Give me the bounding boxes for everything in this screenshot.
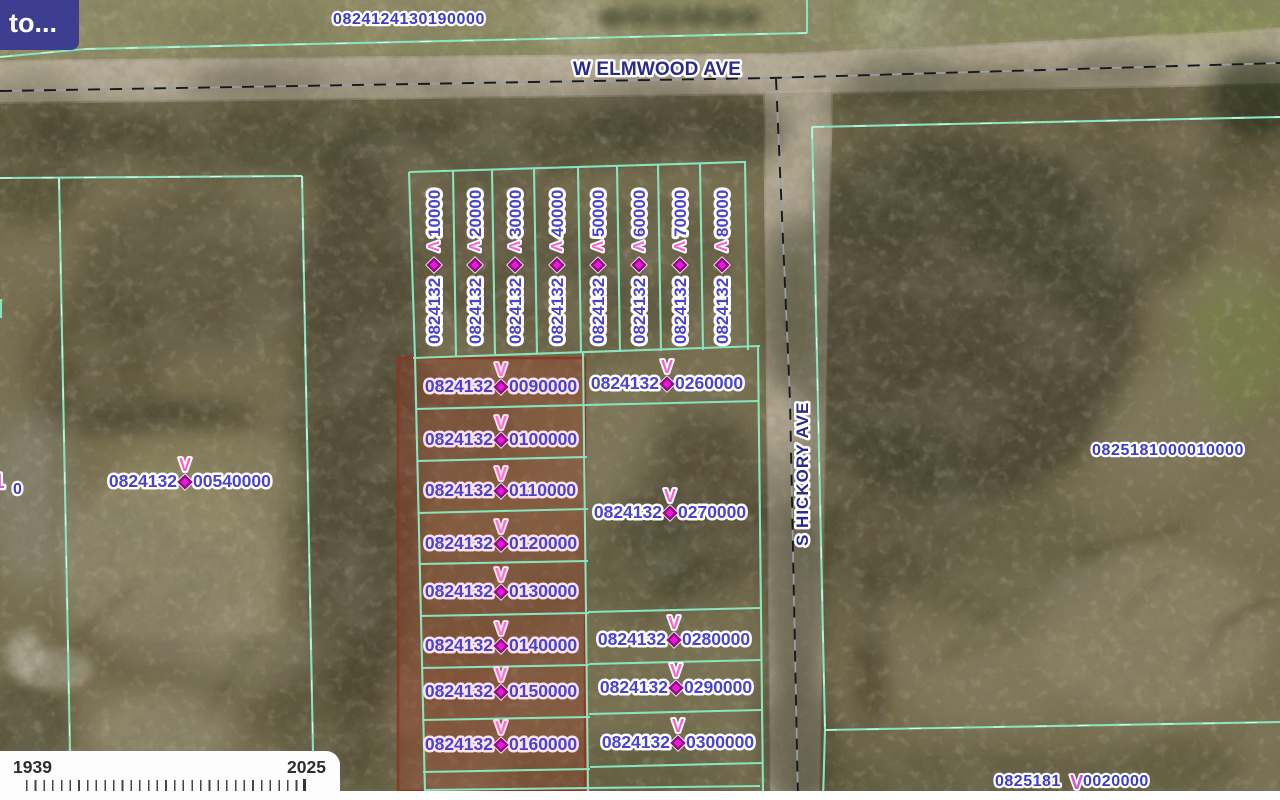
svg-text:0: 0 [13,481,22,498]
svg-text:0130000: 0130000 [509,581,577,601]
svg-text:0824132: 0824132 [425,429,493,449]
svg-text:V: V [588,241,605,252]
svg-text:0824132: 0824132 [671,278,690,344]
svg-text:0824132: 0824132 [425,581,493,601]
svg-text:10000: 10000 [425,190,444,237]
svg-text:V: V [1070,772,1084,794]
svg-text:0824132: 0824132 [713,278,732,344]
svg-text:0300000: 0300000 [686,732,754,752]
svg-text:V: V [495,464,507,484]
svg-text:0824132: 0824132 [425,480,493,500]
svg-text:0824132: 0824132 [425,734,493,754]
svg-text:V: V [495,517,507,537]
svg-text:0100000: 0100000 [509,429,577,449]
svg-text:0824132: 0824132 [600,677,668,697]
svg-text:1: 1 [0,470,5,493]
svg-text:50000: 50000 [589,190,608,237]
svg-text:V: V [670,241,687,252]
svg-text:V: V [672,716,684,736]
svg-text:0160000: 0160000 [509,734,577,754]
svg-text:70000: 70000 [671,190,690,237]
svg-text:0110000: 0110000 [509,480,576,500]
svg-text:0824132: 0824132 [602,732,670,752]
svg-text:V: V [495,619,507,639]
svg-text:V: V [495,565,507,585]
svg-text:V: V [668,613,680,633]
svg-text:0825181000010000: 0825181000010000 [1092,442,1244,459]
svg-text:W ELMWOOD AVE: W ELMWOOD AVE [573,59,741,80]
svg-text:V: V [505,241,522,252]
svg-text:0260000: 0260000 [675,373,743,393]
svg-text:40000: 40000 [548,190,567,237]
svg-text:0824132: 0824132 [425,376,493,396]
svg-text:30000: 30000 [506,190,525,237]
svg-text:0090000: 0090000 [509,376,577,396]
svg-text:0824132: 0824132 [591,373,659,393]
svg-text:0824132: 0824132 [548,278,567,344]
svg-text:V: V [664,486,676,506]
svg-text:0824132: 0824132 [425,635,493,655]
svg-text:0824132: 0824132 [594,502,662,522]
svg-text:0824132: 0824132 [425,278,444,344]
svg-text:0824132: 0824132 [589,278,608,344]
svg-text:0824132: 0824132 [506,278,525,344]
svg-text:0824132: 0824132 [109,471,177,491]
svg-text:V: V [629,241,646,252]
svg-text:20000: 20000 [466,190,485,237]
svg-text:V: V [547,241,564,252]
svg-text:0120000: 0120000 [509,533,577,553]
svg-text:V: V [424,241,441,252]
svg-text:V: V [661,357,673,377]
svg-text:V: V [465,241,482,252]
svg-text:S HICKORY AVE: S HICKORY AVE [793,402,812,546]
svg-text:V: V [495,360,507,380]
svg-text:0020000: 0020000 [1083,773,1149,790]
svg-text:80000: 80000 [713,190,732,237]
svg-text:00540000: 00540000 [193,471,271,491]
svg-text:0824132: 0824132 [630,278,649,344]
svg-text:0824132: 0824132 [425,533,493,553]
svg-text:0825181: 0825181 [995,773,1061,790]
svg-text:0140000: 0140000 [509,635,577,655]
svg-text:0270000: 0270000 [678,502,746,522]
svg-text:V: V [670,661,682,681]
svg-text:V: V [712,241,729,252]
svg-text:0824132: 0824132 [425,681,493,701]
svg-text:V: V [495,718,507,738]
svg-text:0150000: 0150000 [509,681,577,701]
svg-text:0824132: 0824132 [466,278,485,344]
svg-text:0290000: 0290000 [684,677,752,697]
svg-text:0824124130190000: 0824124130190000 [333,11,485,28]
svg-text:V: V [495,665,507,685]
svg-text:0280000: 0280000 [682,629,750,649]
svg-text:V: V [495,413,507,433]
svg-text:0824132: 0824132 [598,629,666,649]
svg-text:60000: 60000 [630,190,649,237]
svg-text:V: V [179,455,191,475]
